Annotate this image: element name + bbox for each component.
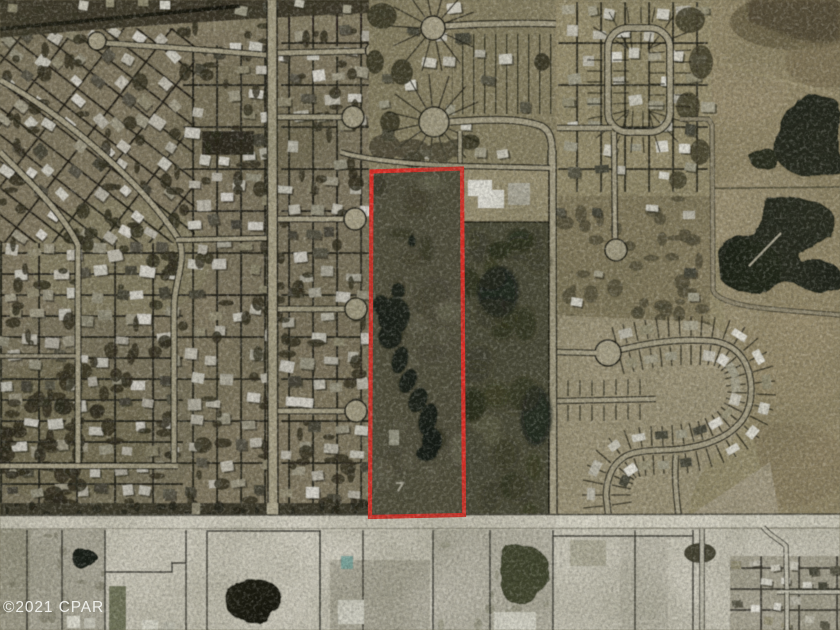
svg-text:©2021 CPAR: ©2021 CPAR: [3, 599, 104, 616]
